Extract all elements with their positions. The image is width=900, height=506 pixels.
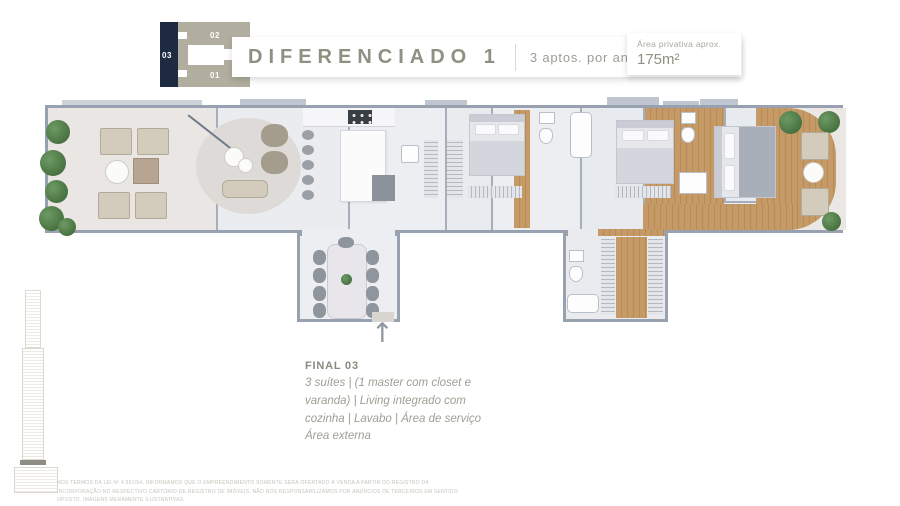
bathtub-icon (567, 294, 599, 313)
bathtub-icon (570, 112, 592, 158)
bar-stool (302, 130, 314, 140)
final-description: 3 suítes | (1 master com closet e varand… (305, 375, 505, 446)
kitchen-cabinet (372, 175, 395, 201)
plant-icon (779, 111, 802, 134)
lounge-chair (135, 192, 167, 219)
opening-closet-wood (598, 229, 664, 236)
master-bed (714, 126, 776, 198)
north-arrow-icon: ↑ (371, 320, 394, 347)
opening-dining (302, 229, 395, 236)
bar-stool (302, 190, 314, 200)
round-table (803, 162, 824, 183)
plant-icon (818, 111, 840, 133)
sink-icon (539, 112, 555, 124)
toilet-icon (539, 128, 553, 144)
building-elevation (14, 288, 60, 494)
bar-stool (302, 160, 314, 170)
armchair (261, 124, 288, 147)
elevation-highlighted-floor (20, 460, 46, 465)
bar-stool (302, 175, 314, 185)
dining-chair (313, 250, 326, 265)
bench (468, 186, 522, 198)
armchair (261, 151, 288, 174)
sink-icon (681, 112, 696, 124)
dining-chair (366, 286, 379, 301)
table-plant-icon (341, 274, 352, 285)
toilet-icon (569, 266, 583, 282)
bench (615, 186, 671, 198)
washer-icon (401, 145, 419, 163)
entry-door-mat (372, 312, 394, 322)
dining-chair (313, 303, 326, 318)
lounge-chair (98, 192, 130, 219)
lounge-chair (100, 128, 132, 155)
round-table (105, 160, 129, 184)
dining-chair (313, 268, 326, 283)
closet-wood-floor (616, 237, 647, 318)
hallway-wood-floor (643, 204, 793, 230)
plant-icon (58, 218, 76, 236)
elevation-tower-top (25, 290, 41, 348)
opening-closet (568, 229, 598, 236)
plant-icon (45, 180, 68, 203)
legal-disclaimer: NOS TERMOS DA LEI Nº 4.591/64, INFORMAMO… (57, 479, 469, 505)
plant-icon (40, 150, 66, 176)
wardrobe (447, 140, 463, 198)
dining-chair (338, 237, 354, 248)
elevation-base (14, 467, 58, 493)
stove-icon (348, 110, 372, 124)
lounge-chair (137, 128, 169, 155)
final-heading: FINAL 03 (305, 360, 359, 372)
terrace-chair (801, 188, 829, 216)
dining-chair (366, 250, 379, 265)
closet-shelves (648, 239, 663, 315)
fire-pit (133, 158, 159, 184)
service-shelves (424, 140, 438, 198)
plant-icon (822, 212, 841, 231)
terrace-chair (801, 132, 829, 160)
sofa (222, 180, 268, 198)
bed (616, 120, 674, 184)
closet-shelves (601, 239, 615, 315)
plant-icon (46, 120, 70, 144)
toilet-icon (681, 127, 695, 143)
bar-stool (302, 145, 314, 155)
bed (469, 114, 525, 176)
shower-icon (679, 172, 707, 194)
sink-icon (569, 250, 584, 262)
dining-chair (313, 286, 326, 301)
floor-plan-page: 02 03 01 DIFERENCIADO 1 3 aptos. por and… (0, 0, 900, 506)
dining-chair (366, 268, 379, 283)
coffee-table (238, 158, 253, 173)
elevation-tower-body (22, 348, 44, 460)
